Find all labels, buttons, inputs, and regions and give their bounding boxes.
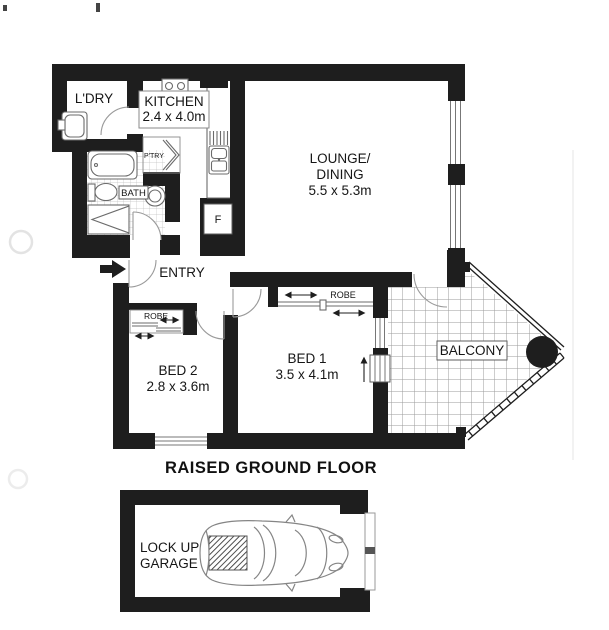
shower-icon xyxy=(88,205,129,234)
bed1-robe: ROBE xyxy=(278,290,373,313)
bed1-dims: 3.5 x 4.1m xyxy=(275,367,338,382)
laundry-tub-icon xyxy=(58,112,87,140)
toilet-icon xyxy=(88,184,117,202)
garage-label-1: LOCK UP xyxy=(140,540,199,555)
car-window-hatch xyxy=(209,536,247,570)
bed1-window-1 xyxy=(373,318,388,348)
balcony-label: BALCONY xyxy=(440,343,505,358)
pantry-label: P'TRY xyxy=(144,153,164,160)
scan-speck xyxy=(96,3,100,12)
sink-icon xyxy=(209,146,229,174)
kitchen-dims: 2.4 x 4.0m xyxy=(142,109,205,124)
bed2-robe: ROBE xyxy=(130,310,183,336)
kitchen-label: KITCHEN xyxy=(144,94,203,109)
bath-label-box: BATH xyxy=(119,186,148,199)
garage-label-2: GARAGE xyxy=(140,556,198,571)
bed1-room: BED 1 3.5 x 4.1m ROBE xyxy=(275,290,373,382)
bathtub-icon xyxy=(88,151,137,179)
bed1-window-2 xyxy=(364,355,390,382)
floor-caption: RAISED GROUND FLOOR xyxy=(165,459,377,477)
balcony-label-box: BALCONY xyxy=(437,341,507,360)
car-icon xyxy=(200,515,348,591)
lounge-label-group: LOUNGE/ DINING 5.5 x 5.3m xyxy=(308,151,371,198)
scan-speck xyxy=(3,5,7,11)
lounge-window-2 xyxy=(448,185,465,248)
floor-plan-page: BATH F xyxy=(0,0,609,630)
entry-label: ENTRY xyxy=(159,265,205,280)
lounge-dims: 5.5 x 5.3m xyxy=(308,183,371,198)
fridge-label: F xyxy=(215,214,222,226)
kitchen-label-box: KITCHEN 2.4 x 4.0m xyxy=(139,91,209,128)
bed2-robe-label: ROBE xyxy=(144,311,168,321)
bed2-room: BED 2 2.8 x 3.6m ROBE xyxy=(130,310,210,394)
balcony-column xyxy=(526,336,558,368)
garage: LOCK UP GARAGE xyxy=(120,490,375,612)
bed1-door xyxy=(233,289,261,317)
bed1-robe-label: ROBE xyxy=(330,290,356,300)
laundry-label: L'DRY xyxy=(75,91,113,106)
bed2-door xyxy=(196,311,224,339)
fridge-space: F xyxy=(204,204,232,234)
bed2-label: BED 2 xyxy=(158,363,197,378)
lounge-label-1: LOUNGE/ xyxy=(310,151,371,166)
floor-plan-drawing: BATH F xyxy=(0,0,609,630)
bath-label: BATH xyxy=(121,188,146,199)
bed1-label: BED 1 xyxy=(287,351,326,366)
lounge-window-1 xyxy=(448,101,465,164)
bed2-window xyxy=(155,433,207,449)
lounge-label-2: DINING xyxy=(316,167,363,182)
laundry-door xyxy=(101,107,143,135)
sink-drainer-icon xyxy=(210,131,228,145)
garage-door xyxy=(365,513,375,590)
bed2-dims: 2.8 x 3.6m xyxy=(146,379,209,394)
